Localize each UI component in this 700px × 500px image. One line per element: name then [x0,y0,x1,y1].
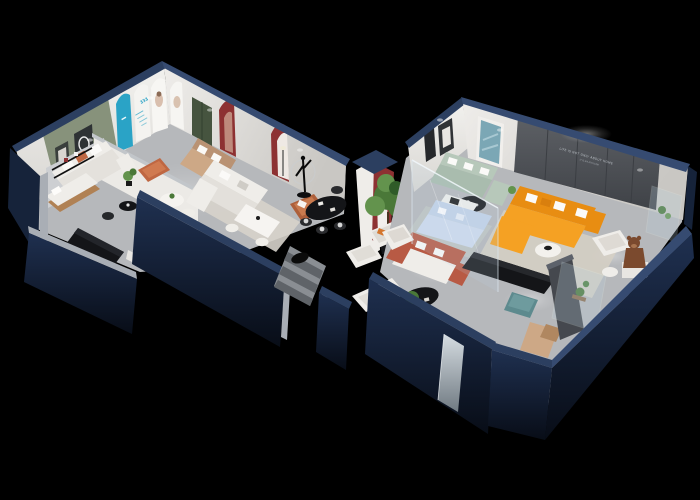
desk-chair [102,212,114,220]
white-chair [226,224,239,232]
table-decor [126,203,129,206]
bear-muzzle [631,244,637,248]
portrait-head [157,91,162,96]
lamp-shade [280,146,286,150]
corner-glass-plant-case [646,186,682,242]
black-tray [544,246,552,250]
teal-abstract-artwork [476,116,504,168]
small-plant [508,186,516,194]
showroom-render: 333 [0,0,700,500]
red-arch-inner [224,112,233,153]
white-chair [256,238,269,246]
floorplan-svg: 333 [0,0,700,500]
portrait-photo [173,96,180,108]
black-dining-chair [331,186,343,194]
round-white-coffee-table [535,243,561,258]
table-decor [256,216,260,220]
